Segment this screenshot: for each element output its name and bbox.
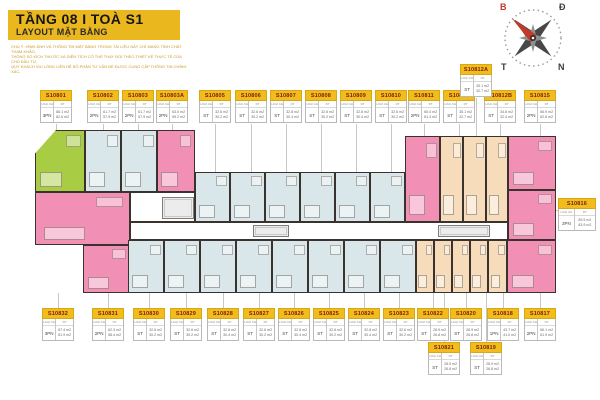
unit-card-S10821[interactable]: S10821LOẠI CHSTDT28.9 m226.8 m2 [428, 342, 460, 375]
unit-S10818[interactable] [488, 240, 507, 293]
furniture [96, 197, 122, 207]
furniture [538, 245, 552, 255]
area-values: 32.6 m230.2 m2 [249, 108, 266, 122]
furniture [443, 195, 454, 215]
type-value: 1PN [488, 326, 500, 340]
area-label: DT [319, 101, 336, 108]
type-label: LOẠI CH [314, 319, 326, 326]
type-value: ST [461, 82, 473, 96]
unit-card-S10831[interactable]: S10831LOẠI CH2PNDT62.3 m258.4 m2 [92, 308, 124, 341]
area-label: DT [397, 319, 414, 326]
area-values: 89.5 m283.9 m2 [575, 216, 595, 230]
type-value: ST [306, 108, 318, 122]
type-value: ST [208, 326, 220, 340]
furniture [240, 275, 256, 288]
leader-line [391, 124, 392, 172]
type-label: LOẠI CH [279, 319, 291, 326]
furniture [269, 205, 285, 218]
type-value: 2PN [409, 108, 421, 122]
unit-card-S10824[interactable]: S10824LOẠI CHSTDT32.8 m230.4 m2 [348, 308, 380, 341]
leader-line [321, 124, 322, 172]
type-label: LOẠI CH [208, 319, 220, 326]
leader-line [500, 124, 501, 136]
unit-code: S10803A [156, 90, 188, 101]
furniture [234, 205, 250, 218]
unit-card-S10807[interactable]: S10807LOẠI CHSTDT32.8 m230.4 m2 [270, 90, 302, 123]
unit-card-S10815[interactable]: S10815LOẠI CH2PNDT66.9 m262.8 m2 [524, 90, 556, 123]
unit-card-S10806[interactable]: S10806LOẠI CHSTDT32.6 m230.2 m2 [235, 90, 267, 123]
unit-S10808[interactable] [300, 172, 335, 222]
type-label: LOẠI CH [43, 319, 55, 326]
leader-line [58, 293, 59, 308]
type-label: LOẠI CH [418, 319, 430, 326]
unit-S10801[interactable] [35, 130, 85, 192]
type-label: LOẠI CH [488, 319, 500, 326]
area-label: DT [538, 101, 555, 108]
area-label: DT [284, 101, 301, 108]
leader-line [540, 293, 541, 308]
type-value: ST [314, 326, 326, 340]
type-value: 3PN [41, 108, 53, 122]
area-label: DT [474, 75, 491, 82]
furniture [216, 176, 227, 186]
unit-S10817[interactable] [507, 240, 556, 293]
type-value: ST [429, 360, 441, 374]
unit-code: S10820 [450, 308, 482, 319]
area-label: DT [147, 319, 164, 326]
type-label: LOẠI CH [236, 101, 248, 108]
unit-S10805[interactable] [195, 172, 230, 222]
area-label: DT [362, 319, 379, 326]
furniture [472, 275, 481, 288]
unit-S10828[interactable] [200, 240, 236, 293]
disclaimer-text: CHÚ Ý: HÌNH ẢNH VÀ THÔNG TIN MẶT BẰNG TR… [11, 44, 191, 74]
furniture [150, 245, 161, 255]
furniture [222, 245, 233, 255]
type-value: ST [376, 108, 388, 122]
type-label: LOẠI CH [157, 101, 169, 108]
unit-S10832[interactable] [35, 192, 130, 245]
furniture [491, 275, 500, 288]
furniture [391, 176, 402, 186]
unit-S10824[interactable] [344, 240, 380, 293]
furniture [426, 245, 432, 255]
furniture [40, 172, 62, 187]
leader-line [56, 124, 57, 130]
furniture [462, 245, 468, 255]
unit-S10803A[interactable] [157, 130, 195, 192]
unit-code: S10826 [278, 308, 310, 319]
area-label: DT [464, 319, 481, 326]
area-label: DT [501, 319, 518, 326]
area-label: DT [422, 101, 439, 108]
type-value: 2PN [93, 326, 105, 340]
compass-label-north: B [500, 2, 507, 12]
leader-line [294, 293, 295, 308]
unit-S10820[interactable] [452, 240, 470, 293]
furniture [453, 143, 460, 158]
elevator-core [438, 225, 490, 237]
leader-line [459, 124, 460, 136]
unit-card-S10825[interactable]: S10825LOẠI CHSTDT32.6 m230.2 m2 [313, 308, 345, 341]
furniture [143, 135, 154, 147]
unit-code: S10803 [122, 90, 154, 101]
type-label: LOẠI CH [271, 101, 283, 108]
type-value: ST [341, 108, 353, 122]
area-values: 61.7 m257.9 m2 [136, 108, 153, 122]
unit-S10803[interactable] [121, 130, 157, 192]
unit-S10812[interactable] [463, 136, 486, 222]
type-value: 2PN [123, 108, 135, 122]
unit-S10827[interactable] [236, 240, 272, 293]
area-label: DT [106, 319, 123, 326]
page-subtitle: LAYOUT MẶT BẰNG [16, 27, 172, 37]
type-value: ST [384, 326, 396, 340]
unit-card-S10832[interactable]: S10832LOẠI CH3PNDT87.4 m281.9 m2 [42, 308, 74, 341]
unit-code: S10821 [428, 342, 460, 353]
unit-S10823[interactable] [380, 240, 416, 293]
leader-line [286, 124, 287, 172]
type-label: LOẠI CH [306, 101, 318, 108]
area-values: 32.6 m230.2 m2 [257, 326, 274, 340]
area-label: DT [54, 101, 71, 108]
unit-card-S10819[interactable]: S10819LOẠI CHSTDT28.9 m226.8 m2 [470, 342, 502, 375]
furniture [402, 245, 413, 255]
area-label: DT [170, 101, 187, 108]
area-values: 32.6 m230.2 m2 [213, 108, 230, 122]
furniture [89, 172, 105, 187]
type-label: LOẠI CH [525, 319, 537, 326]
unit-card-S10810[interactable]: S10810LOẠI CHSTDT32.6 m230.2 m2 [375, 90, 407, 123]
area-values: 32.8 m230.4 m2 [292, 326, 309, 340]
furniture [276, 275, 292, 288]
unit-card-S10826[interactable]: S10826LOẠI CHSTDT32.8 m230.4 m2 [278, 308, 310, 341]
type-value: ST [236, 108, 248, 122]
area-label: DT [431, 319, 448, 326]
furniture [312, 275, 328, 288]
area-label: DT [292, 319, 309, 326]
furniture [107, 135, 118, 147]
unit-code: S10801 [40, 90, 72, 101]
area-label: DT [101, 101, 118, 108]
area-values: 35.1 m232.7 m2 [457, 108, 474, 122]
furniture [356, 176, 367, 186]
furniture [168, 275, 184, 288]
elevator-core [253, 225, 289, 237]
area-label: DT [484, 353, 501, 360]
leader-line [364, 293, 365, 308]
area-label: DT [442, 353, 459, 360]
type-label: LOẠI CH [461, 75, 473, 82]
area-label: DT [327, 319, 344, 326]
unit-code: S10808 [305, 90, 337, 101]
type-value: ST [279, 326, 291, 340]
leader-line [466, 293, 467, 308]
unit-card-S10803[interactable]: S10803LOẠI CH2PNDT61.7 m257.9 m2 [122, 90, 154, 123]
area-values: 88.1 m282.6 m2 [54, 108, 71, 122]
furniture [88, 277, 109, 289]
unit-S10810[interactable] [370, 172, 405, 222]
leader-line [251, 124, 252, 172]
unit-code: S10810 [375, 90, 407, 101]
unit-code: S10819 [470, 342, 502, 353]
furniture [444, 245, 450, 255]
unit-card-S10829[interactable]: S10829LOẠI CHSTDT32.6 m230.2 m2 [170, 308, 202, 341]
unit-S10821[interactable] [434, 240, 452, 293]
unit-card-S10809[interactable]: S10809LOẠI CHSTDT32.8 m230.4 m2 [340, 90, 372, 123]
area-label: DT [389, 101, 406, 108]
unit-code: S10829 [170, 308, 202, 319]
type-value: ST [418, 326, 430, 340]
furniture [466, 195, 477, 215]
furniture [480, 245, 486, 255]
title-block: TẦNG 08 I TOÀ S1 LAYOUT MẶT BẰNG [8, 10, 180, 40]
unit-S10831[interactable] [83, 245, 130, 293]
furniture [186, 245, 197, 255]
unit-code: S10817 [524, 308, 556, 319]
area-values: 63.0 m259.2 m2 [170, 108, 187, 122]
type-label: LOẠI CH [171, 319, 183, 326]
unit-code: S10806 [235, 90, 267, 101]
unit-card-S10803A[interactable]: S10803ALOẠI CH2PNDT63.0 m259.2 m2 [156, 90, 188, 123]
type-label: LOẠI CH [93, 319, 105, 326]
compass-rose: B Đ T N [491, 0, 575, 78]
type-label: LOẠI CH [451, 319, 463, 326]
area-values: 28.9 m226.8 m2 [442, 360, 459, 374]
unit-card-S10801[interactable]: S10801LOẠI CH3PNDT88.1 m282.6 m2 [40, 90, 72, 123]
area-values: 32.6 m230.2 m2 [327, 326, 344, 340]
leader-line [149, 293, 150, 308]
area-values: 32.8 m230.4 m2 [362, 326, 379, 340]
area-values: 34.8 m232.4 m2 [498, 108, 515, 122]
type-label: LOẠI CH [384, 319, 396, 326]
furniture [125, 172, 141, 187]
unit-card-S10808[interactable]: S10808LOẠI CHSTDT32.6 m230.2 m2 [305, 90, 337, 123]
area-values: 87.4 m281.9 m2 [56, 326, 73, 340]
unit-code: S10818 [487, 308, 519, 319]
furniture [161, 172, 178, 187]
furniture [374, 205, 390, 218]
unit-S10829[interactable] [164, 240, 200, 293]
unit-S10825[interactable] [308, 240, 344, 293]
furniture [339, 205, 355, 218]
floorplan-canvas: TẦNG 08 I TOÀ S1 LAYOUT MẶT BẰNG CHÚ Ý: … [0, 0, 600, 400]
unit-S10812A[interactable] [440, 136, 463, 222]
area-values: 32.6 m230.2 m2 [184, 326, 201, 340]
unit-code: S10805 [199, 90, 231, 101]
unit-card-S10818[interactable]: S10818LOẠI CH1PNDT43.7 m241.0 m2 [487, 308, 519, 341]
unit-code: S10825 [313, 308, 345, 319]
unit-card-S10828[interactable]: S10828LOẠI CHSTDT32.8 m230.4 m2 [207, 308, 239, 341]
leader-line [424, 124, 425, 136]
unit-card-S10811[interactable]: S10811LOẠI CH2PNDT65.4 m261.3 m2 [408, 90, 440, 123]
furniture [454, 275, 463, 288]
type-value: ST [444, 108, 456, 122]
type-label: LOẠI CH [525, 101, 537, 108]
type-value: 3PN [43, 326, 55, 340]
compass-label-south: N [558, 62, 565, 72]
type-label: LOẠI CH [244, 319, 256, 326]
unit-card-S10823[interactable]: S10823LOẠI CHSTDT32.6 m230.2 m2 [383, 308, 415, 341]
furniture [512, 275, 534, 288]
leader-line [356, 124, 357, 172]
furniture [426, 143, 437, 158]
unit-card-S10820[interactable]: S10820LOẠI CHSTDT28.9 m226.8 m2 [450, 308, 482, 341]
unit-card-S10822[interactable]: S10822LOẠI CHSTDT28.9 m226.8 m2 [417, 308, 449, 341]
type-label: LOẠI CH [429, 353, 441, 360]
type-label: LOẠI CH [444, 101, 456, 108]
leader-line [433, 293, 434, 308]
type-label: LOẠI CH [376, 101, 388, 108]
area-label: DT [575, 209, 595, 216]
furniture [199, 205, 215, 218]
furniture [513, 223, 534, 236]
area-values: 32.8 m230.4 m2 [221, 326, 238, 340]
furniture [286, 176, 297, 186]
furniture [498, 245, 504, 255]
unit-code: S10832 [42, 308, 74, 319]
unit-S10822[interactable] [416, 240, 434, 293]
leader-line [540, 124, 541, 136]
furniture [366, 245, 377, 255]
leader-line [215, 124, 216, 172]
unit-card-S10816[interactable]: S10816LOẠI CH3PNDT89.5 m283.9 m2 [558, 198, 596, 231]
compass-label-west: T [501, 62, 507, 72]
area-values: 66.1 m261.9 m2 [538, 326, 555, 340]
type-value: 2PN [525, 108, 537, 122]
unit-S10806[interactable] [230, 172, 265, 222]
area-values: 62.3 m258.4 m2 [106, 326, 123, 340]
unit-S10815[interactable] [508, 136, 556, 190]
compass-label-east: Đ [559, 2, 566, 12]
furniture [132, 275, 148, 288]
area-label: DT [221, 319, 238, 326]
furniture [384, 275, 400, 288]
furniture [44, 227, 85, 240]
leader-line [329, 293, 330, 308]
type-label: LOẠI CH [341, 101, 353, 108]
leader-line [476, 98, 477, 136]
furniture [294, 245, 305, 255]
type-value: 2PN [157, 108, 169, 122]
area-label: DT [136, 101, 153, 108]
unit-card-S10812A[interactable]: S10812ALOẠI CHSTDT35.1 m232.7 m2 [460, 64, 492, 97]
unit-card-S10830[interactable]: S10830LOẠI CHSTDT32.6 m230.2 m2 [133, 308, 165, 341]
unit-S10802[interactable] [85, 130, 121, 192]
unit-code: S10802 [87, 90, 119, 101]
leader-line [223, 293, 224, 308]
furniture [330, 245, 341, 255]
unit-code: S10812A [460, 64, 492, 75]
elevator-core [162, 197, 194, 219]
area-values: 32.8 m230.4 m2 [354, 108, 371, 122]
area-values: 32.6 m230.2 m2 [397, 326, 414, 340]
area-values: 32.6 m230.2 m2 [319, 108, 336, 122]
unit-S10826[interactable] [272, 240, 308, 293]
unit-S10811[interactable] [405, 136, 440, 222]
type-value: ST [471, 360, 483, 374]
area-values: 32.6 m230.2 m2 [147, 326, 164, 340]
unit-S10809[interactable] [335, 172, 370, 222]
furniture [180, 135, 191, 147]
type-value: ST [171, 326, 183, 340]
page-title: TẦNG 08 I TOÀ S1 [16, 12, 172, 27]
furniture [321, 176, 332, 186]
furniture [436, 275, 445, 288]
unit-code: S10830 [133, 308, 165, 319]
area-label: DT [498, 101, 515, 108]
area-values: 43.7 m241.0 m2 [501, 326, 518, 340]
furniture [204, 275, 220, 288]
unit-code: S10827 [243, 308, 275, 319]
type-label: LOẠI CH [409, 101, 421, 108]
leader-line [186, 293, 187, 308]
unit-S10812B[interactable] [486, 136, 508, 222]
unit-S10819[interactable] [470, 240, 488, 293]
area-label: DT [249, 101, 266, 108]
furniture [538, 194, 552, 204]
area-values: 28.9 m226.8 m2 [431, 326, 448, 340]
leader-line [259, 293, 260, 308]
furniture [476, 143, 483, 158]
unit-code: S10809 [340, 90, 372, 101]
unit-card-S10805[interactable]: S10805LOẠI CHSTDT32.6 m230.2 m2 [199, 90, 231, 123]
area-values: 32.6 m230.2 m2 [389, 108, 406, 122]
area-values: 28.9 m226.8 m2 [464, 326, 481, 340]
unit-S10816[interactable] [508, 190, 556, 240]
furniture [409, 195, 425, 215]
area-values: 61.7 m257.9 m2 [101, 108, 118, 122]
area-label: DT [56, 319, 73, 326]
unit-code: S10807 [270, 90, 302, 101]
type-value: ST [244, 326, 256, 340]
unit-code: S10824 [348, 308, 380, 319]
furniture [498, 143, 505, 158]
area-label: DT [354, 101, 371, 108]
unit-card-S10817[interactable]: S10817LOẠI CH2PNDT66.1 m261.9 m2 [524, 308, 556, 341]
unit-card-S10802[interactable]: S10802LOẠI CH2PNDT61.7 m257.9 m2 [87, 90, 119, 123]
type-label: LOẠI CH [123, 101, 135, 108]
area-values: 32.8 m230.4 m2 [284, 108, 301, 122]
furniture [258, 245, 269, 255]
furniture [304, 205, 320, 218]
furniture [418, 275, 427, 288]
type-label: LOẠI CH [559, 209, 574, 216]
unit-S10830[interactable] [128, 240, 164, 293]
type-label: LOẠI CH [88, 101, 100, 108]
area-label: DT [538, 319, 555, 326]
unit-code: S10822 [417, 308, 449, 319]
leader-line [108, 293, 109, 308]
type-value: ST [349, 326, 361, 340]
area-values: 65.4 m261.3 m2 [422, 108, 439, 122]
unit-S10807[interactable] [265, 172, 300, 222]
area-label: DT [257, 319, 274, 326]
unit-code: S10831 [92, 308, 124, 319]
type-label: LOẠI CH [134, 319, 146, 326]
unit-code: S10811 [408, 90, 440, 101]
area-label: DT [457, 101, 474, 108]
unit-card-S10827[interactable]: S10827LOẠI CHSTDT32.6 m230.2 m2 [243, 308, 275, 341]
unit-code: S10816 [558, 198, 596, 209]
leader-line [399, 293, 400, 308]
furniture [348, 275, 364, 288]
area-values: 35.1 m232.7 m2 [474, 82, 491, 96]
type-label: LOẠI CH [349, 319, 361, 326]
leader-line [503, 293, 504, 308]
type-value: ST [451, 326, 463, 340]
furniture [538, 141, 552, 151]
